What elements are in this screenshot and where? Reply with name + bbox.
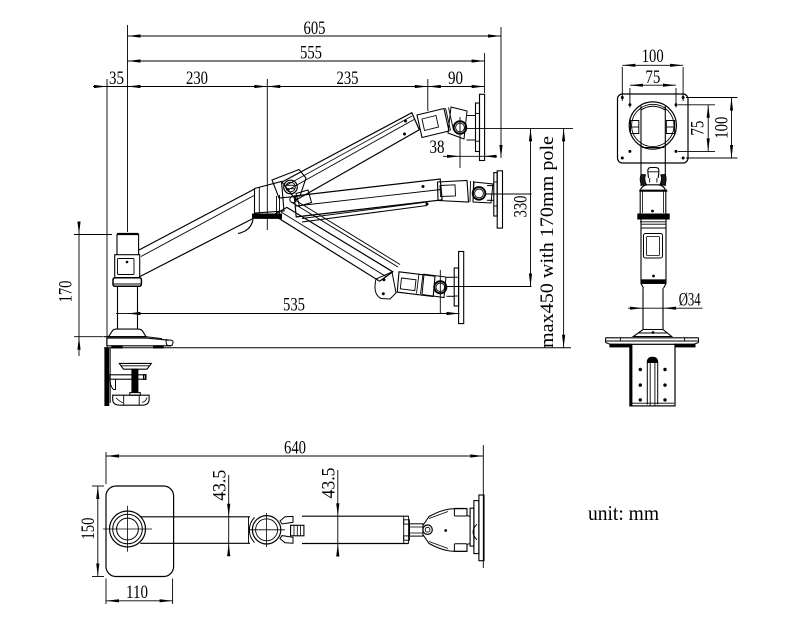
svg-text:535: 535	[283, 295, 305, 316]
svg-text:38: 38	[430, 137, 445, 158]
svg-text:Ø34: Ø34	[679, 289, 701, 310]
svg-text:100: 100	[711, 117, 732, 139]
svg-text:90: 90	[448, 68, 463, 89]
svg-text:75: 75	[645, 67, 660, 88]
svg-text:35: 35	[109, 68, 124, 89]
svg-text:100: 100	[642, 46, 664, 67]
svg-text:605: 605	[304, 18, 326, 39]
svg-text:230: 230	[186, 68, 208, 89]
svg-text:170: 170	[56, 281, 77, 303]
svg-text:555: 555	[300, 43, 322, 64]
svg-text:110: 110	[126, 582, 148, 603]
svg-text:330: 330	[511, 196, 532, 218]
svg-text:640: 640	[284, 438, 306, 459]
svg-text:max450 with 170mm pole: max450 with 170mm pole	[537, 136, 558, 348]
svg-text:150: 150	[78, 518, 99, 540]
svg-text:75: 75	[688, 121, 709, 136]
svg-text:43.5: 43.5	[209, 470, 230, 501]
svg-text:unit: mm: unit: mm	[588, 501, 659, 525]
svg-text:43.5: 43.5	[318, 468, 339, 499]
svg-text:235: 235	[337, 68, 359, 89]
